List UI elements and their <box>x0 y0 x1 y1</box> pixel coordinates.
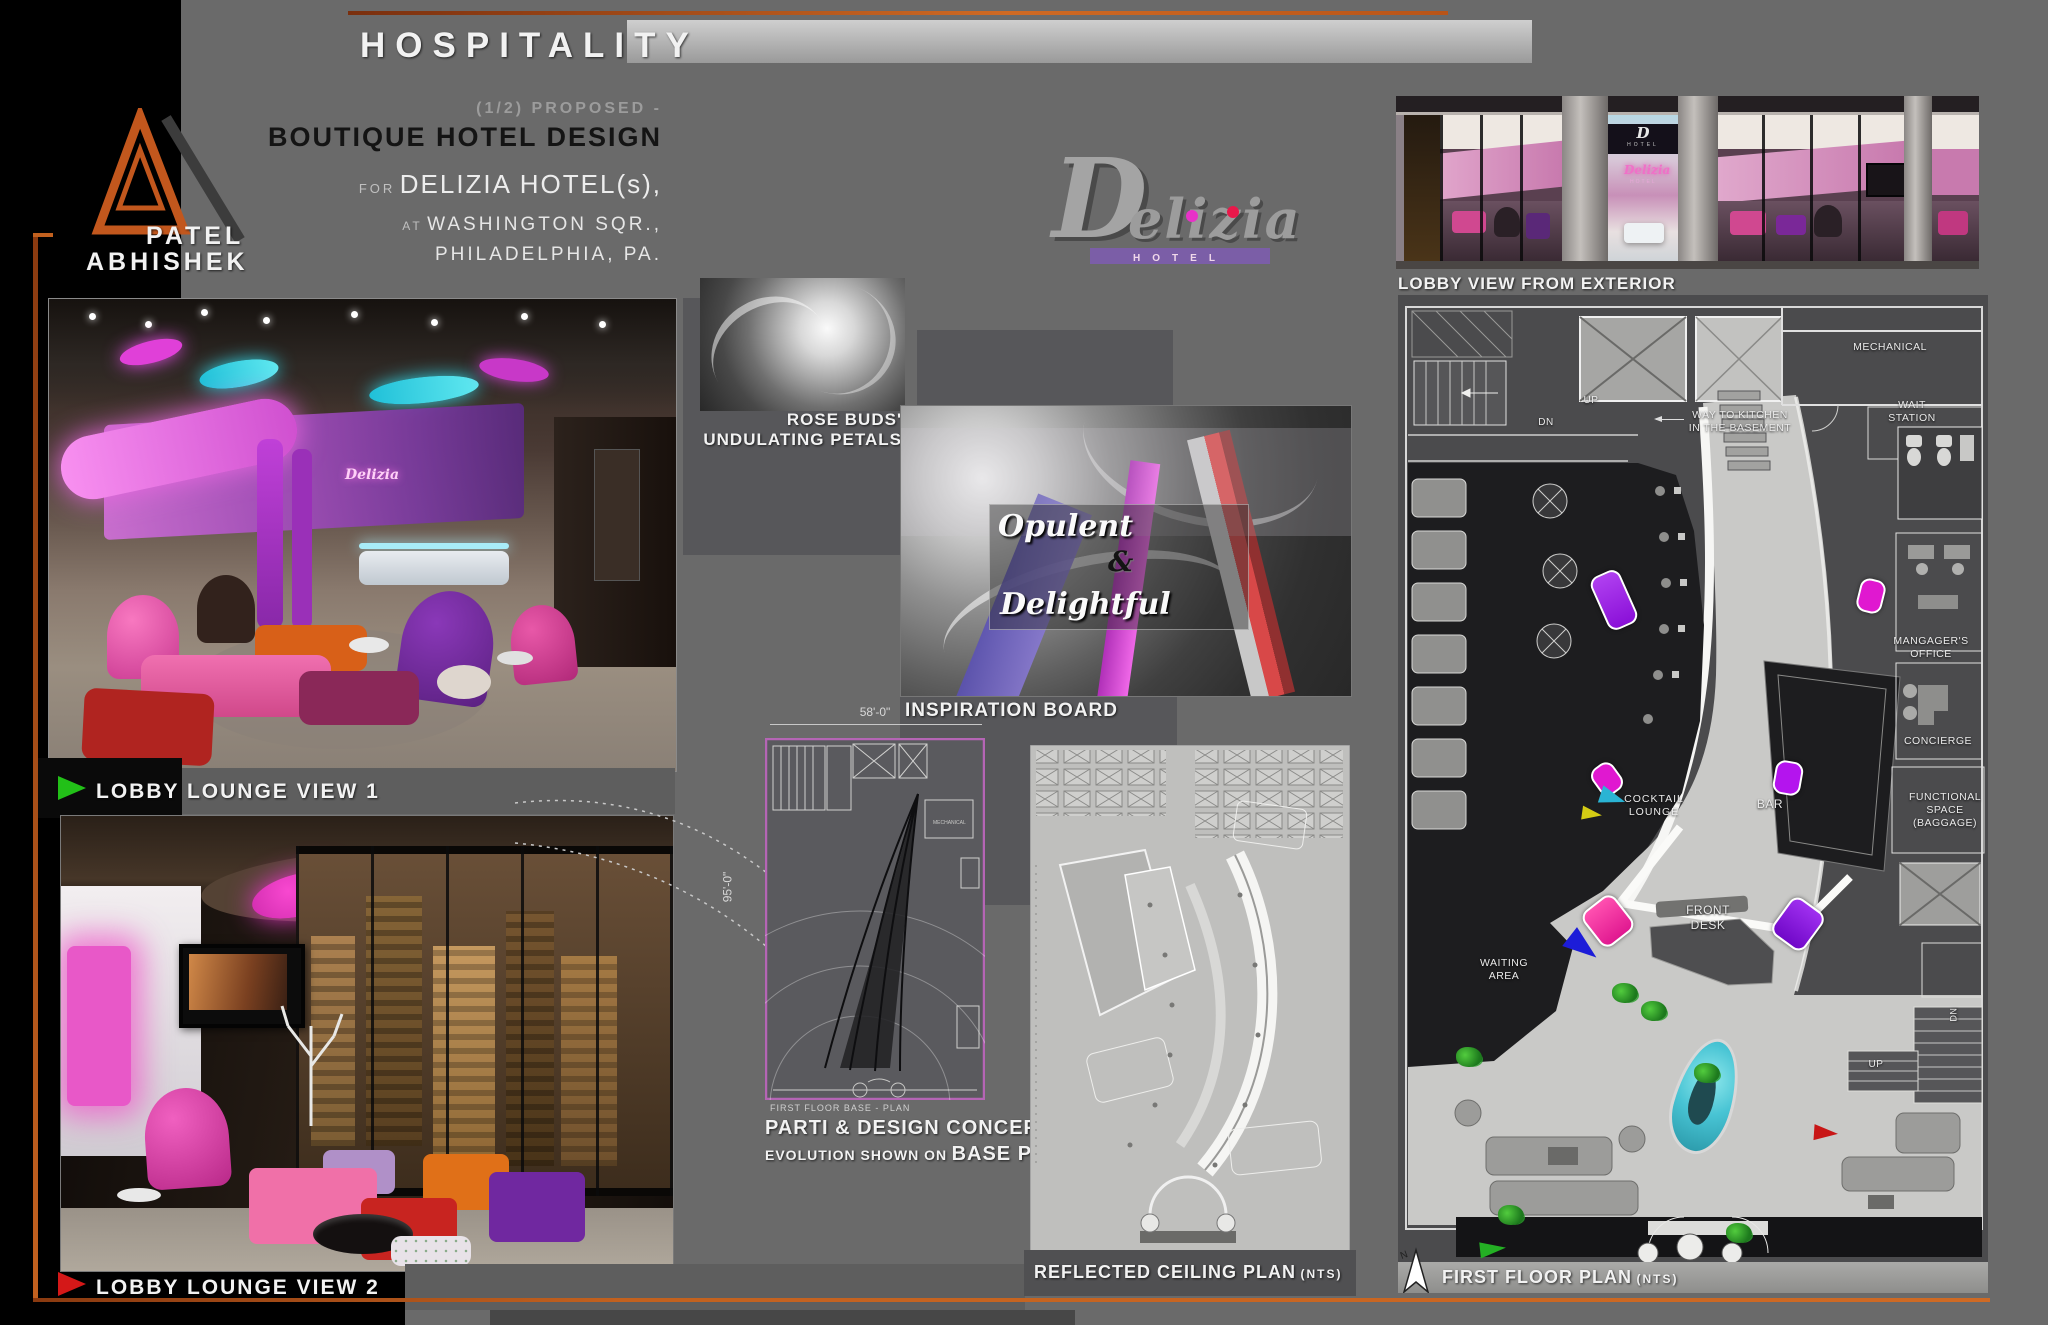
project-client: DELIZIA HOTEL(s), <box>400 169 662 199</box>
plan-label: FIRST FLOOR PLAN (NTS) <box>1442 1267 1678 1288</box>
parti-mech-label: MECHANICAL <box>933 820 966 826</box>
facade-pillar <box>1562 96 1608 261</box>
north-letter: N <box>1399 1249 1410 1262</box>
facade-pillar <box>1904 96 1932 261</box>
room-label-functional: FUNCTIONAL SPACE (BAGGAGE) <box>1909 791 1981 830</box>
sofa-purple <box>489 1172 585 1242</box>
brand-script: elizia <box>1128 192 1302 246</box>
rose-caption-line2: UNDULATING PETALS <box>700 430 902 450</box>
rose-caption-line1: ROSE BUDS' <box>700 410 902 430</box>
header-orange-rule <box>348 11 1448 15</box>
lobby-lounge-view-1-image: Delizia <box>48 298 677 772</box>
side-table <box>497 651 533 665</box>
plant-icon <box>1694 1063 1720 1083</box>
lobby2-red-arrow-icon <box>58 1272 86 1296</box>
brand-dot-pink-icon <box>1186 210 1198 222</box>
parti-base-caption: FIRST FLOOR BASE - PLAN <box>770 1103 910 1113</box>
plan-scale-note: (NTS) <box>1636 1272 1678 1286</box>
rose-caption: ROSE BUDS' UNDULATING PETALS <box>700 410 902 450</box>
frame-line-top <box>33 233 53 237</box>
city-reflection <box>1404 115 1440 261</box>
overlay-amp: & <box>1108 545 1133 578</box>
overlay-quote-box: Opulent & Delightful <box>989 504 1249 630</box>
project-address: WASHINGTON SQR., <box>427 214 662 235</box>
sofa-plum <box>299 671 419 725</box>
magenta-glow-panel <box>67 946 131 1106</box>
green-arrow-icon <box>1479 1240 1507 1259</box>
project-title: BOUTIQUE HOTEL DESIGN <box>200 122 662 153</box>
plant-icon <box>1612 983 1638 1003</box>
reflected-ceiling-plan-drawing <box>1030 745 1350 1252</box>
brand-sub: HOTEL <box>1133 253 1227 264</box>
lobby2-label: LOBBY LOUNGE VIEW 2 <box>96 1276 380 1300</box>
storefront-bay <box>1932 115 1979 261</box>
side-table <box>349 637 389 653</box>
plant-icon <box>1498 1205 1524 1225</box>
reception-glow <box>359 543 509 549</box>
plant-icon <box>1456 1047 1482 1067</box>
presentation-board: HOSPITALITY PATEL ABHISHEK (1/2) PROPOSE… <box>0 0 2048 1325</box>
room-label-cocktail: COCKTAIL LOUNGE <box>1624 793 1684 819</box>
wall-sign: Delizia <box>345 467 399 483</box>
purple-column <box>292 449 312 629</box>
interior-sign: Delizia <box>1624 163 1670 177</box>
lobby1-green-arrow-icon <box>58 776 86 800</box>
brand-hotel-bar: HOTEL <box>1090 248 1270 264</box>
parti-caption-line2-small: EVOLUTION SHOWN ON <box>765 1147 947 1163</box>
door <box>594 449 640 581</box>
inspiration-board-image: Opulent & Delightful <box>900 405 1352 697</box>
rcp-scale-note: (NTS) <box>1300 1267 1342 1281</box>
overlay-word2: Delightful <box>1000 587 1171 622</box>
overlay-word1: Opulent <box>998 509 1133 544</box>
brand-dot-red-icon <box>1227 206 1239 218</box>
interior-sign-sub: HOTEL <box>1630 179 1657 185</box>
lobby2-label-strip <box>405 1264 1025 1310</box>
room-label-mechanical: MECHANICAL <box>1853 341 1927 354</box>
parti-base-plan-drawing: MECHANICAL <box>765 738 985 1100</box>
side-table <box>117 1188 161 1202</box>
lobby1-label: LOBBY LOUNGE VIEW 1 <box>96 780 380 804</box>
project-title-block: (1/2) PROPOSED - BOUTIQUE HOTEL DESIGN F… <box>200 100 662 266</box>
yellow-arrow-icon <box>1581 806 1603 823</box>
reception-desk <box>359 551 509 585</box>
kitchen-arrow-icon <box>1656 419 1684 420</box>
purple-column <box>257 439 283 629</box>
ceiling-lights <box>49 299 676 339</box>
entrance-sign: D HOTEL <box>1608 124 1678 154</box>
project-status: PROPOSED - <box>532 100 662 117</box>
parti-dim-line <box>770 724 982 725</box>
room-label-kitchen: WAY TO KITCHEN IN THE BASEMENT <box>1689 409 1791 435</box>
tree-branch-decor <box>276 966 346 1126</box>
footer-dark-strip <box>490 1310 1075 1325</box>
sofa-red <box>81 688 215 767</box>
room-label-bar: BAR <box>1757 797 1783 812</box>
room-label-concierge: CONCIERGE <box>1904 735 1972 748</box>
rcp-label: REFLECTED CEILING PLAN (NTS) <box>1034 1262 1342 1283</box>
entrance-desk <box>1624 223 1664 243</box>
concept-leader-curves <box>505 785 775 965</box>
room-label-up-lobby: UP <box>1869 1059 1884 1072</box>
entrance-sign-initial: D <box>1608 124 1678 142</box>
tv-screen <box>1866 163 1904 197</box>
room-label-front-desk: FRONT DESK <box>1686 903 1730 933</box>
inspiration-label: INSPIRATION BOARD <box>905 700 1118 722</box>
plant-icon <box>1641 1001 1667 1021</box>
lobby-exterior-image: D HOTEL Delizia HOTEL <box>1395 95 1980 270</box>
facade-pillar <box>1678 96 1718 261</box>
room-label-waiting: WAITING AREA <box>1480 957 1528 983</box>
entrance-sign-sub: HOTEL <box>1608 142 1678 148</box>
project-at-word: AT <box>402 219 422 233</box>
first-floor-plan-image: MECHANICAL WAY TO KITCHEN IN THE BASEMEN… <box>1398 295 1988 1293</box>
project-for-word: FOR <box>359 181 395 196</box>
exterior-label: LOBBY VIEW FROM EXTERIOR <box>1398 274 1676 294</box>
room-label-dn-top: DN <box>1538 417 1553 430</box>
plant-icon <box>1726 1223 1752 1243</box>
room-label-managers: MANGAGER'S OFFICE <box>1893 635 1968 661</box>
project-city: PHILADELPHIA, PA. <box>200 244 662 266</box>
red-arrow-icon <box>1813 1124 1838 1142</box>
room-label-up-top: UP <box>1584 395 1599 408</box>
parti-caption-line1: PARTI & DESIGN CONCEPT <box>765 1117 1051 1140</box>
storefront-bay <box>1718 115 1904 261</box>
storefront-bay <box>1404 115 1562 261</box>
egg-chair-dark <box>197 575 255 643</box>
room-label-dn-side: DN <box>1948 1008 1959 1022</box>
room-label-wait-station: WAIT STATION <box>1888 399 1935 425</box>
pouf-white <box>437 665 491 699</box>
inspiration-top-panel <box>917 330 1173 407</box>
project-sequence: (1/2) <box>476 100 524 117</box>
parti-dim-width: 58'-0" <box>820 705 930 719</box>
parti-dim-height: 95'-0" <box>720 872 734 903</box>
page-title: HOSPITALITY <box>360 26 699 66</box>
pouf-dotted <box>391 1236 471 1266</box>
rose-buds-image <box>700 278 905 411</box>
footer-orange-rule <box>33 1298 1990 1302</box>
header-gray-bar <box>627 20 1532 63</box>
north-arrow-icon: N <box>1398 1246 1434 1293</box>
entrance: D HOTEL Delizia HOTEL <box>1608 115 1678 261</box>
